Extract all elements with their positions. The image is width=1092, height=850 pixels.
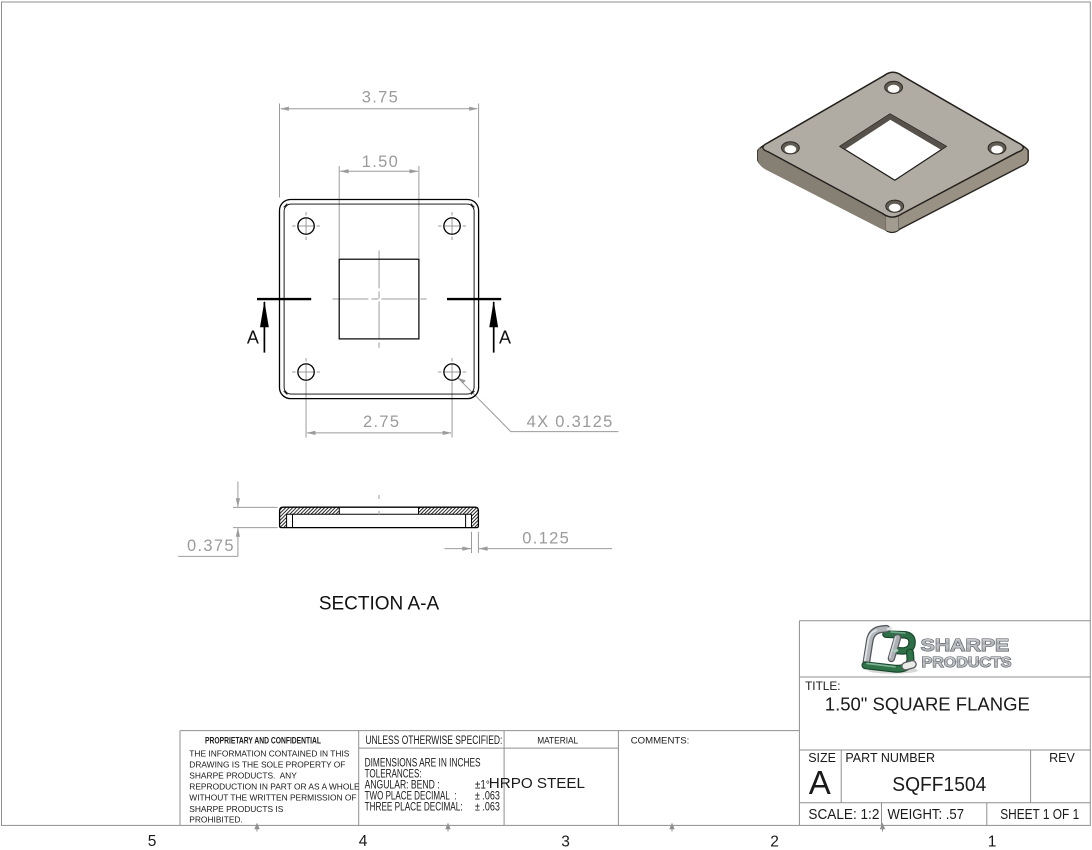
svg-text:REPRODUCTION IN PART OR AS A W: REPRODUCTION IN PART OR AS A WHOLE — [189, 782, 360, 792]
svg-text:MATERIAL: MATERIAL — [537, 736, 579, 747]
svg-text:3: 3 — [561, 834, 570, 850]
svg-text:PRODUCTS: PRODUCTS — [922, 655, 1012, 671]
svg-text:PROPRIETARY AND CONFIDENTIAL: PROPRIETARY AND CONFIDENTIAL — [205, 735, 321, 745]
svg-text:SCALE: 1:2: SCALE: 1:2 — [808, 807, 879, 823]
svg-text:A: A — [499, 327, 511, 347]
svg-text:PART NUMBER: PART NUMBER — [845, 751, 935, 765]
svg-text:WITHOUT THE WRITTEN PERMISSION: WITHOUT THE WRITTEN PERMISSION OF — [189, 793, 356, 803]
svg-text:2.75: 2.75 — [363, 413, 400, 431]
svg-text:COMMENTS:: COMMENTS: — [631, 735, 690, 746]
svg-text:SECTION A-A: SECTION A-A — [319, 593, 440, 614]
svg-text:A: A — [809, 764, 831, 801]
svg-text:SQFF1504: SQFF1504 — [892, 773, 986, 796]
svg-text:± .063: ± .063 — [475, 801, 500, 813]
svg-text:HRPO STEEL: HRPO STEEL — [489, 775, 585, 792]
svg-text:SHARPE PRODUCTS IS: SHARPE PRODUCTS IS — [189, 804, 283, 814]
svg-text:UNLESS OTHERWISE SPECIFIED:: UNLESS OTHERWISE SPECIFIED: — [365, 735, 502, 747]
svg-text:3.75: 3.75 — [362, 89, 399, 107]
svg-text:A: A — [247, 327, 259, 347]
svg-text:PROHIBITED.: PROHIBITED. — [189, 815, 243, 825]
svg-text:5: 5 — [148, 833, 157, 850]
svg-text:DRAWING IS THE SOLE PROPERTY O: DRAWING IS THE SOLE PROPERTY OF — [189, 759, 345, 769]
svg-text:4: 4 — [359, 833, 368, 850]
svg-text:1.50: 1.50 — [362, 153, 399, 171]
svg-text:SHARPE PRODUCTS. ANY: SHARPE PRODUCTS. ANY — [189, 771, 297, 781]
svg-text:REV: REV — [1049, 751, 1075, 765]
svg-text:WEIGHT: .57: WEIGHT: .57 — [888, 807, 965, 823]
svg-text:1: 1 — [988, 834, 997, 850]
svg-text:1.50" SQUARE FLANGE: 1.50" SQUARE FLANGE — [825, 693, 1030, 714]
svg-text:SHARPE: SHARPE — [921, 635, 1010, 655]
svg-text:TITLE:: TITLE: — [805, 679, 840, 693]
svg-text:0.375: 0.375 — [187, 537, 235, 555]
svg-text:4X 0.3125: 4X 0.3125 — [527, 413, 614, 431]
svg-text:SHEET 1 OF 1: SHEET 1 OF 1 — [1000, 807, 1079, 823]
svg-text:THREE PLACE DECIMAL:: THREE PLACE DECIMAL: — [365, 801, 463, 813]
svg-text:0.125: 0.125 — [522, 529, 570, 547]
svg-text:2: 2 — [770, 834, 779, 850]
svg-text:THE INFORMATION CONTAINED IN T: THE INFORMATION CONTAINED IN THIS — [189, 748, 349, 758]
